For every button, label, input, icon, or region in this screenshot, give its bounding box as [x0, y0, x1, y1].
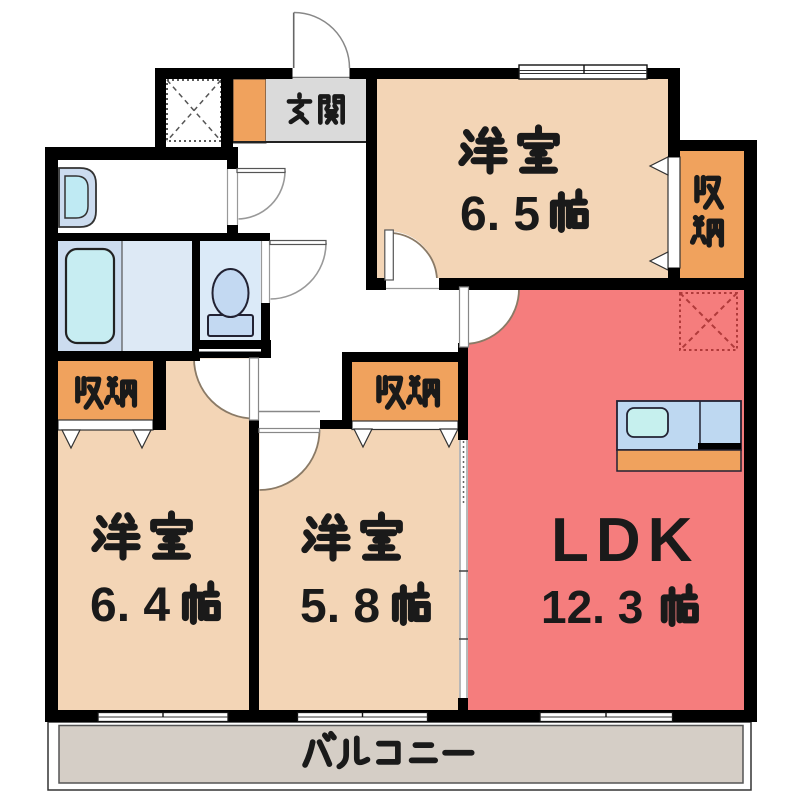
svg-text:6. 5: 6. 5 [460, 188, 540, 241]
svg-text:5. 8: 5. 8 [300, 580, 380, 633]
svg-text:6. 4: 6. 4 [90, 579, 170, 632]
svg-text:LDK: LDK [551, 506, 699, 575]
svg-text:12. 3: 12. 3 [541, 581, 643, 633]
